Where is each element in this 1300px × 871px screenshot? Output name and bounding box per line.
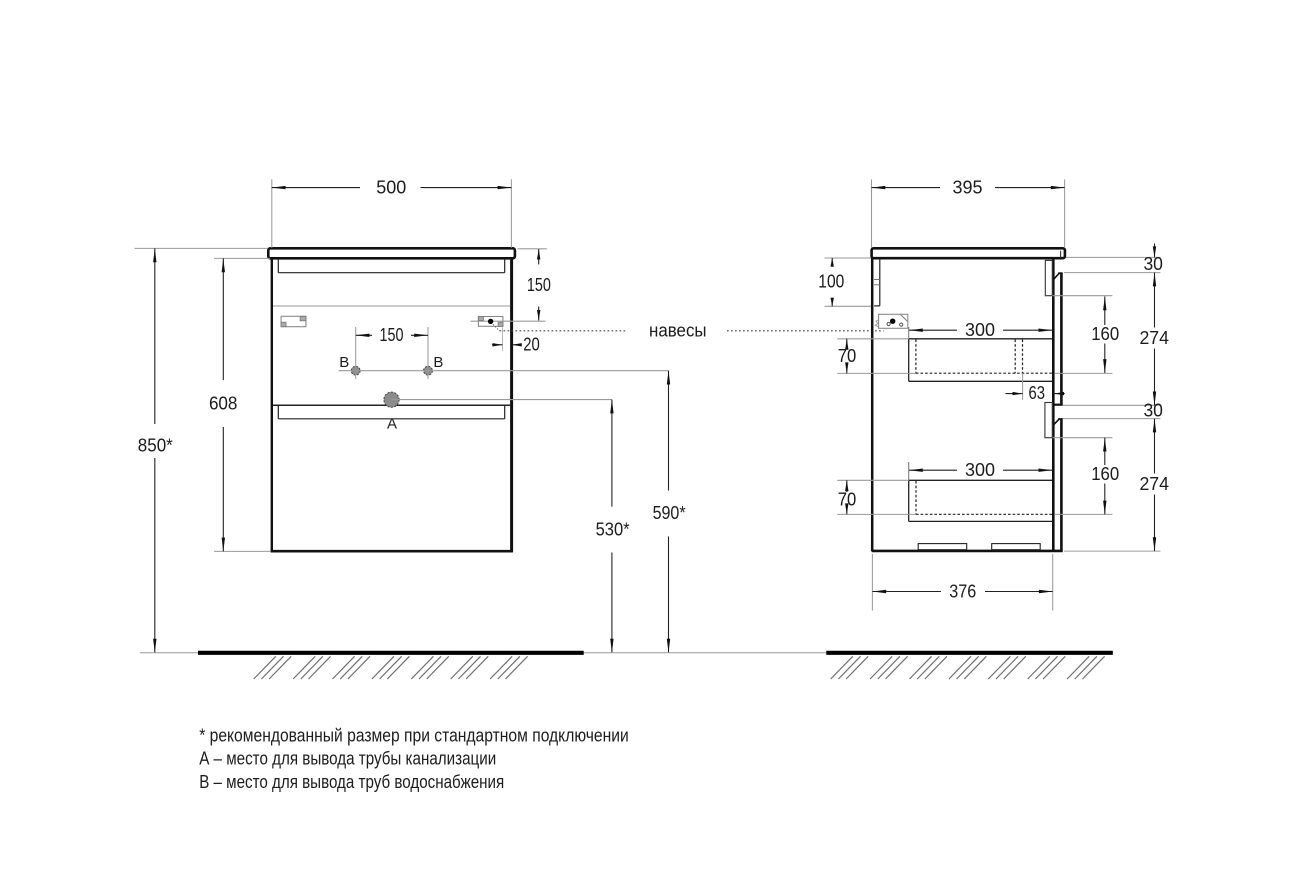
svg-text:навесы: навесы: [649, 321, 707, 341]
svg-text:70: 70: [838, 489, 857, 509]
svg-text:376: 376: [949, 581, 976, 601]
svg-text:530*: 530*: [596, 519, 630, 539]
svg-text:70: 70: [838, 346, 857, 366]
svg-text:160: 160: [1091, 324, 1119, 344]
svg-text:30: 30: [1143, 401, 1163, 421]
svg-text:300: 300: [965, 460, 995, 480]
svg-text:160: 160: [1091, 464, 1119, 484]
svg-text:395: 395: [953, 177, 983, 197]
svg-text:500: 500: [376, 177, 406, 197]
svg-text:100: 100: [818, 271, 844, 291]
svg-text:150: 150: [527, 275, 551, 295]
svg-text:В – место для вывода труб водо: В – место для вывода труб водоснабжения: [199, 772, 504, 792]
svg-text:850*: 850*: [138, 435, 173, 455]
svg-text:300: 300: [965, 320, 995, 340]
svg-text:А – место для вывода трубы кан: А – место для вывода трубы канализации: [199, 749, 496, 769]
svg-text:63: 63: [1029, 383, 1046, 403]
svg-text:274: 274: [1139, 328, 1169, 348]
svg-text:274: 274: [1139, 474, 1169, 494]
svg-text:20: 20: [523, 334, 540, 354]
svg-text:608: 608: [209, 394, 238, 414]
svg-text:* рекомендованный размер при с: * рекомендованный размер при стандартном…: [199, 726, 629, 746]
svg-text:590*: 590*: [653, 503, 686, 523]
svg-text:30: 30: [1143, 254, 1163, 274]
svg-text:В: В: [339, 354, 349, 371]
svg-text:В: В: [433, 354, 443, 371]
svg-text:А: А: [387, 415, 397, 432]
svg-text:150: 150: [380, 325, 404, 345]
